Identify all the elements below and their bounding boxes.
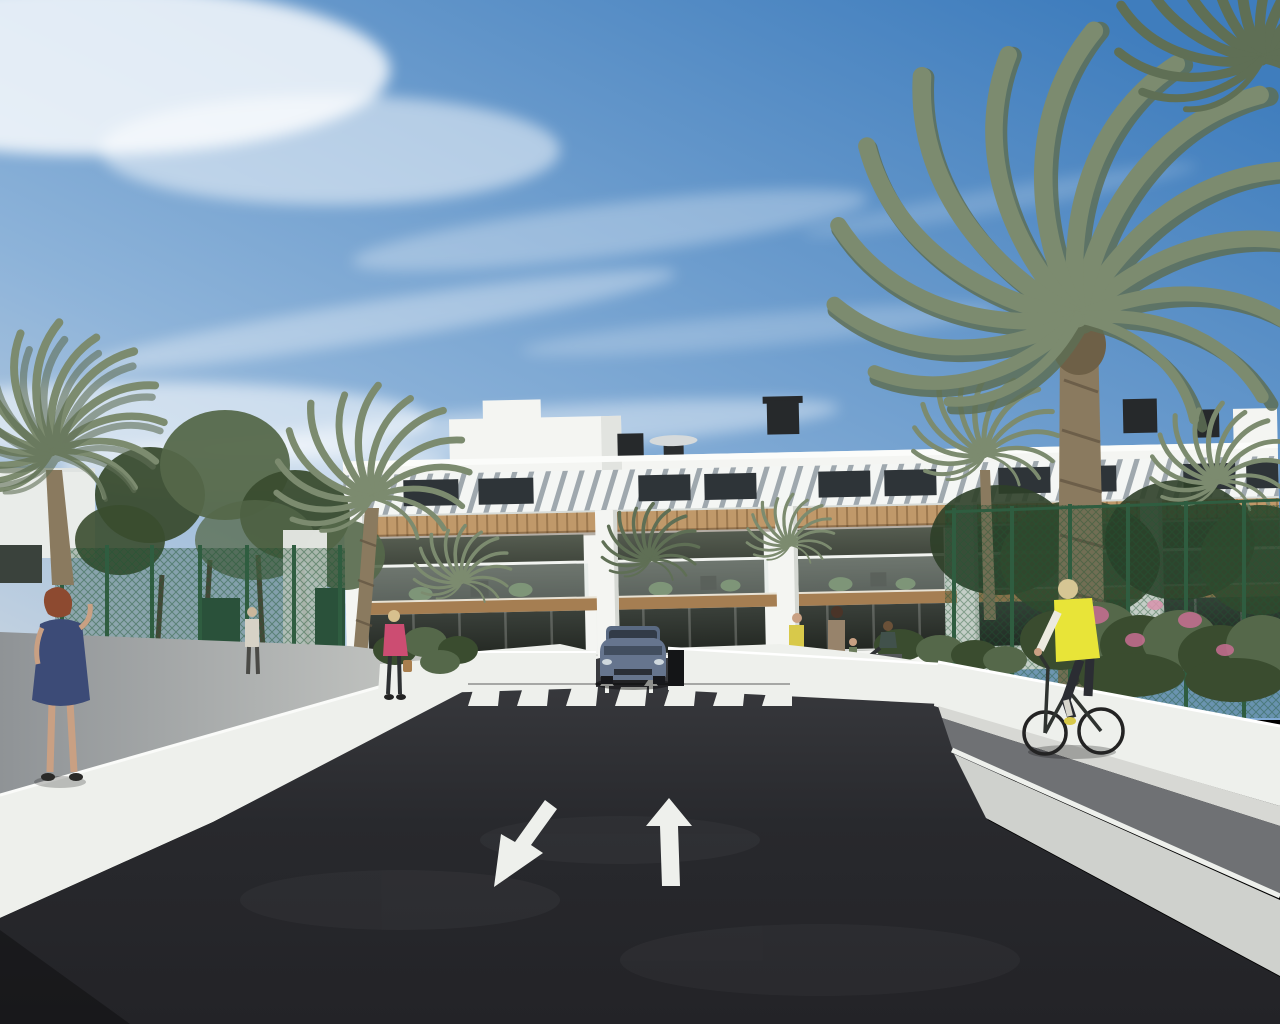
penthouse-volume <box>449 416 622 476</box>
chimney <box>767 400 800 435</box>
penthouse-volume-upper <box>483 399 541 420</box>
cyclist-head <box>1058 579 1078 599</box>
hi-vis-vest <box>1054 598 1100 662</box>
cyclist-shoe <box>1064 717 1076 725</box>
bollard <box>668 650 684 686</box>
handbag <box>403 660 412 672</box>
render-viewport: New-build apartment complex street view … <box>0 0 1280 1024</box>
suv-car <box>595 626 671 690</box>
architectural-render-scene: New-build apartment complex street view … <box>0 0 1280 1024</box>
rooftop-vent-box-2 <box>1123 398 1158 433</box>
